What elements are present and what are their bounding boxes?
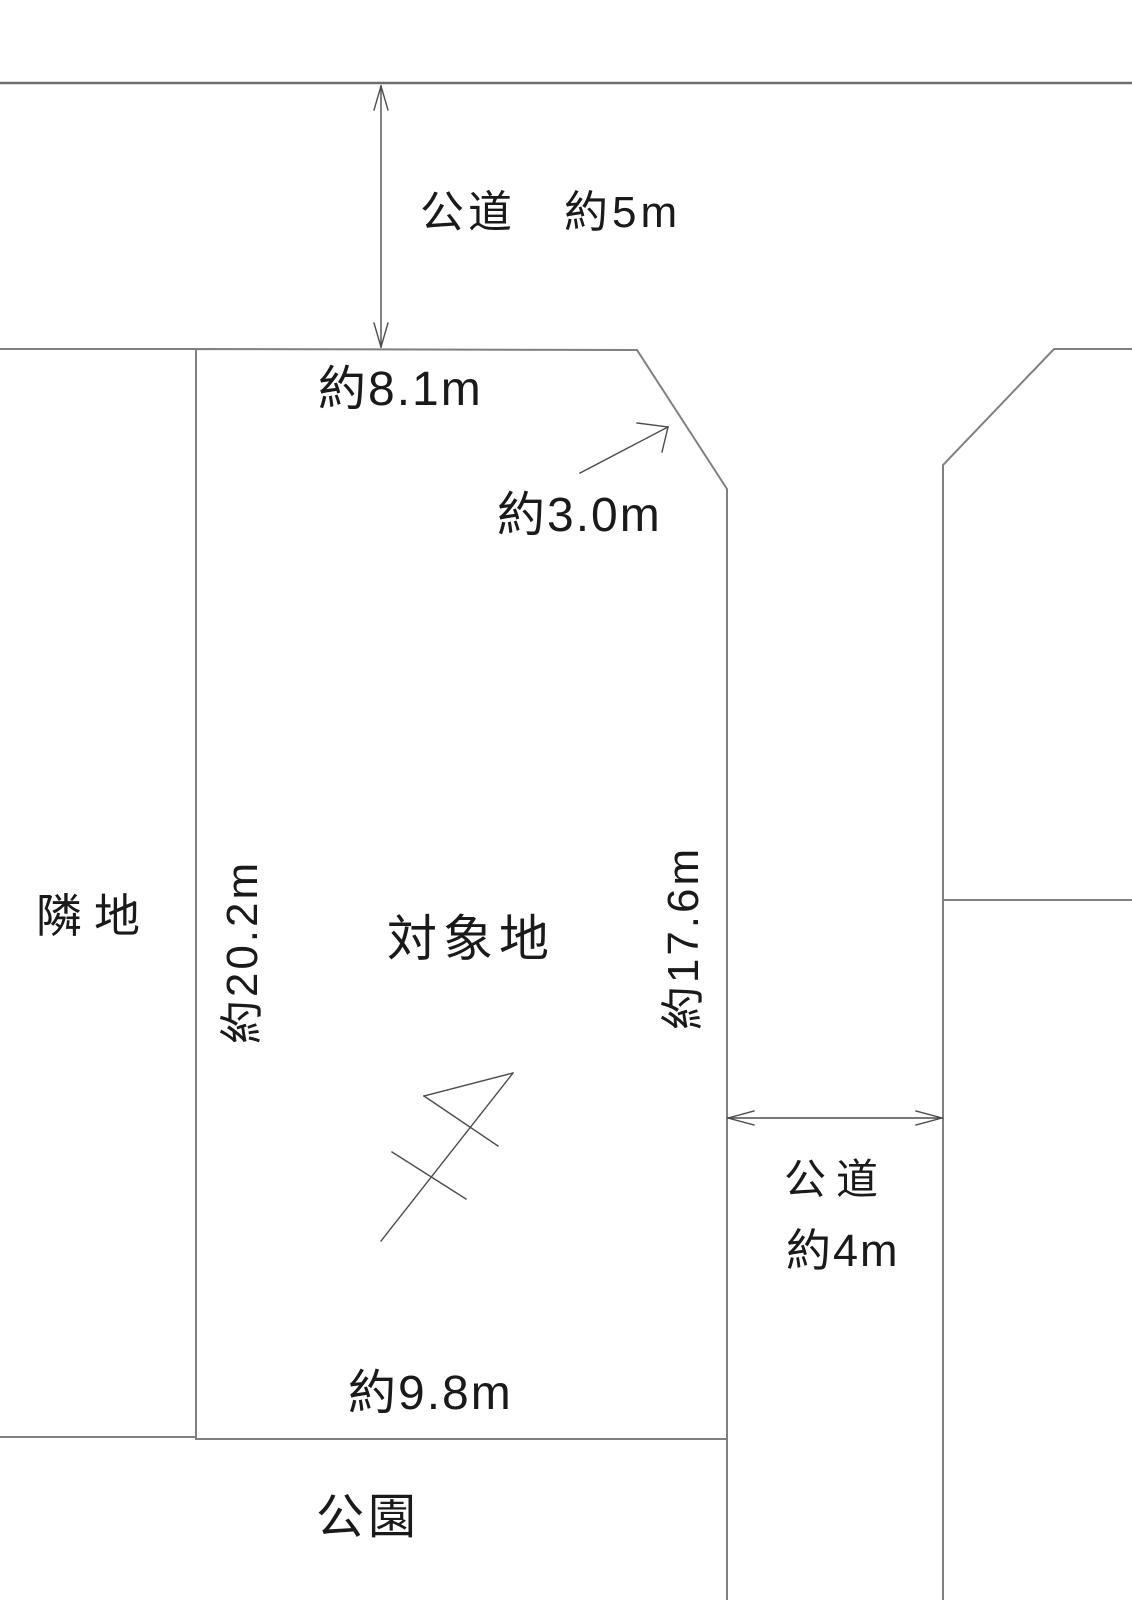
right-road-label: 公道 [784, 1159, 888, 1201]
plot-chamfer-dimension-label: 約3.0m [497, 492, 662, 540]
plot-left-dimension-label: 約20.2m [221, 822, 269, 1082]
right-road-width-label: 約4m [786, 1228, 900, 1273]
north-arrow-icon [381, 1073, 513, 1241]
chamfer-leader-arrow-icon [580, 423, 668, 473]
plot-right-dimension-label: 約17.6m [662, 808, 710, 1068]
park-label: 公園 [316, 1494, 420, 1542]
vertical-dimension-arrow [374, 86, 388, 347]
neighbor-label: 隣地 [36, 893, 152, 939]
top-road-label: 公道 約5m [420, 191, 681, 235]
subject-plot-label: 対象地 [387, 914, 555, 964]
site-plan-linework [0, 0, 1132, 1600]
horizontal-dimension-arrow [728, 1111, 942, 1125]
right-block-outline [943, 349, 1132, 1600]
site-plan-canvas: 公道 約5m 約8.1m 約3.0m 隣地 対象地 約20.2m 約17.6m … [0, 0, 1132, 1600]
plot-bottom-dimension-label: 約9.8m [348, 1370, 513, 1418]
plot-top-dimension-label: 約8.1m [318, 366, 483, 414]
